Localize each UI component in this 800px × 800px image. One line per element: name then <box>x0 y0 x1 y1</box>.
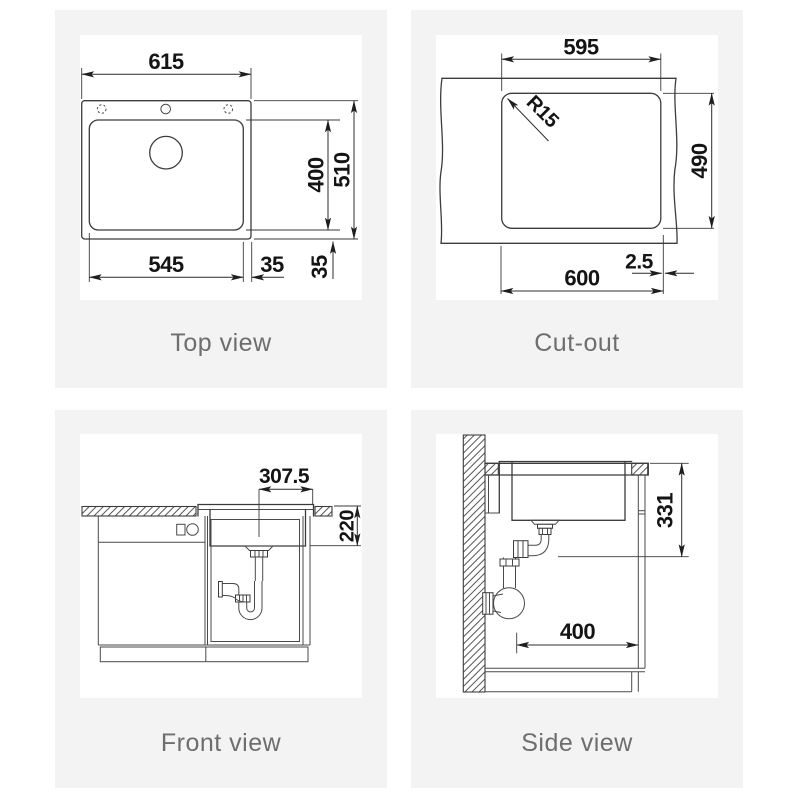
dim-drain-center-offset: 307.5 <box>259 465 310 488</box>
side-view-caption: Side view <box>411 729 743 758</box>
top-view-panel: 615 400 510 545 35 35 Top view <box>55 10 387 388</box>
dim-edge-offset-horizontal: 35 <box>260 252 284 277</box>
front-view-caption: Front view <box>55 729 387 758</box>
cut-out-caption: Cut-out <box>411 329 743 358</box>
dim-edge-offset: 2.5 <box>625 251 654 274</box>
dim-depth-below-counter: 331 <box>653 493 678 528</box>
dim-bowl-length: 400 <box>304 157 329 192</box>
wall-outlet-flange <box>483 593 493 615</box>
dim-bottom-width: 600 <box>564 266 599 291</box>
dim-cabinet-clearance: 400 <box>560 619 595 644</box>
dim-bowl-depth: 220 <box>337 510 359 543</box>
front-view-panel: 307.5 220 Front view <box>55 410 387 788</box>
side-view-panel: 331 400 Side view <box>411 410 743 788</box>
dim-overall-depth: 510 <box>330 152 355 187</box>
dim-edge-offset-vertical: 35 <box>307 255 332 279</box>
drawing-area <box>80 434 362 698</box>
dim-bowl-width: 545 <box>148 252 183 277</box>
dim-top-width: 595 <box>563 35 598 60</box>
cut-out-panel: 595 R15 490 600 2.5 Cut-out <box>411 10 743 388</box>
outlet-end-cap <box>219 582 223 598</box>
wall-section <box>463 435 485 692</box>
top-view-caption: Top view <box>55 329 387 358</box>
dim-cutout-height: 490 <box>687 143 712 178</box>
spec-sheet-page: { "colors": { "page_background": "#fffff… <box>0 0 800 800</box>
dim-overall-width: 615 <box>148 49 183 74</box>
